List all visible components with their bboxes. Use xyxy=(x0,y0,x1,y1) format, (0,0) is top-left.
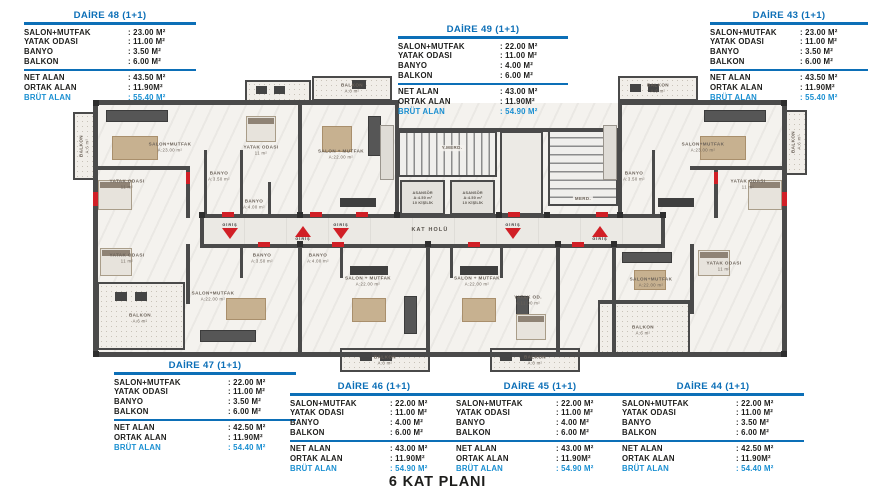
total-row-label: ORTAK ALAN xyxy=(24,83,128,93)
title-underline xyxy=(24,22,196,25)
wall xyxy=(93,166,189,170)
room-area: A:11.00 m² xyxy=(514,300,542,306)
apartment-info-table-daire-44: DAİRE 44 (1+1) SALON+MUTFAK: 22.00 M²YAT… xyxy=(622,381,804,474)
brut-row: BRÜT ALAN : 55.40 M² xyxy=(710,93,868,103)
spec-row-value: : 4.00 M² xyxy=(556,418,624,428)
brut-value: : 55.40 M² xyxy=(800,93,868,103)
column-marker xyxy=(297,212,303,218)
wall xyxy=(93,100,98,357)
spec-row: SALON+MUTFAK: 22.00 M² xyxy=(290,399,458,409)
total-row-value: : 11.90M² xyxy=(556,454,624,464)
door-marker xyxy=(356,212,368,217)
spec-row-value: : 22.00 M² xyxy=(390,399,458,409)
total-row-value: : 42.50 M² xyxy=(736,444,804,454)
column-marker xyxy=(617,212,623,218)
total-row-value: : 11.90M² xyxy=(800,83,868,93)
total-row: NET ALAN: 42.50 M² xyxy=(622,444,804,454)
spec-row-label: SALON+MUTFAK xyxy=(622,399,736,409)
furniture-sofa xyxy=(404,296,417,334)
room-name: BANYO xyxy=(253,252,272,257)
room-name: BALKON xyxy=(78,135,83,157)
room-name: SALON+MUTFAK xyxy=(149,141,192,146)
total-row: ORTAK ALAN: 11.90M² xyxy=(398,97,568,107)
total-row-label: NET ALAN xyxy=(114,423,228,433)
room-label: Y.MERD. xyxy=(440,145,465,151)
spec-row: YATAK ODASI: 11.00 M² xyxy=(398,51,568,61)
brut-label: BRÜT ALAN xyxy=(456,464,556,474)
room-label: SALON+MUTFAKA:22.00 m² xyxy=(630,276,673,287)
spec-row-value: : 11.00 M² xyxy=(800,37,868,47)
spec-row: YATAK ODASI: 11.00 M² xyxy=(456,408,624,418)
table-divider xyxy=(398,83,568,86)
spec-row-label: YATAK ODASI xyxy=(290,408,390,418)
room-name: BALKON xyxy=(341,82,363,87)
door-marker xyxy=(222,212,234,217)
room-name: YATAK ODASI xyxy=(110,178,145,183)
wall xyxy=(186,244,190,304)
room-area: A:6 m² xyxy=(341,88,363,94)
column-marker xyxy=(93,351,99,357)
total-row-label: ORTAK ALAN xyxy=(622,454,736,464)
room-name: SALON + MUTFAK xyxy=(454,275,500,280)
total-row-value: : 42.50 M² xyxy=(228,423,296,433)
table-divider xyxy=(24,69,196,72)
total-row: ORTAK ALAN: 11.90M² xyxy=(114,433,296,443)
column-marker xyxy=(496,212,502,218)
room-label: BALKONA:6 m² xyxy=(129,312,151,323)
room-area: A:22.00 m² xyxy=(192,296,235,302)
room-name: BALKON xyxy=(374,354,396,359)
furniture-sofa xyxy=(704,110,766,122)
room-area: 11 m² xyxy=(244,150,279,156)
furniture-sofa xyxy=(622,252,672,263)
room-area: A:3.50 m² xyxy=(623,176,645,182)
total-row-value: : 43.50 M² xyxy=(128,73,196,83)
wall xyxy=(204,150,207,214)
spec-row-label: BALKON xyxy=(290,428,390,438)
apartment-title: DAİRE 43 (1+1) xyxy=(710,10,868,21)
room-name: YATAK ODASI xyxy=(110,252,145,257)
spec-row: BANYO: 4.00 M² xyxy=(398,61,568,71)
spec-row-label: BANYO xyxy=(710,47,800,57)
total-row-label: NET ALAN xyxy=(456,444,556,454)
furniture-tbl xyxy=(350,266,388,275)
spec-row-value: : 6.00 M² xyxy=(128,57,196,67)
spec-row-value: : 23.00 M² xyxy=(128,28,196,38)
total-row-label: ORTAK ALAN xyxy=(290,454,390,464)
room-label: YATAK ODASI11 m² xyxy=(110,252,145,263)
furniture-tbl xyxy=(658,198,694,207)
spec-row-label: YATAK ODASI xyxy=(622,408,736,418)
total-row-label: ORTAK ALAN xyxy=(398,97,500,107)
spec-row-value: : 11.00 M² xyxy=(128,37,196,47)
furniture-chair xyxy=(256,86,267,94)
room-area: A:6 m² xyxy=(796,131,802,153)
spec-row-label: BANYO xyxy=(622,418,736,428)
wall xyxy=(200,214,204,248)
entrance-arrow-icon xyxy=(505,228,521,239)
room-area: A:6 m² xyxy=(129,318,151,324)
total-row-value: : 11.90M² xyxy=(390,454,458,464)
total-row: NET ALAN: 43.00 M² xyxy=(456,444,624,454)
room-name: YATAK ODASI xyxy=(244,144,279,149)
furniture-chair xyxy=(115,292,127,301)
room-label: BANYOA:4.00 m² xyxy=(307,252,329,263)
spec-row-label: BANYO xyxy=(398,61,500,71)
column-marker xyxy=(199,212,205,218)
column-marker xyxy=(781,351,787,357)
spec-row-value: : 6.00 M² xyxy=(390,428,458,438)
total-row: NET ALAN: 43.50 M² xyxy=(710,73,868,83)
table-divider xyxy=(290,440,458,443)
spec-row-label: YATAK ODASI xyxy=(456,408,556,418)
total-row: NET ALAN: 43.00 M² xyxy=(398,87,568,97)
elevator-1: ASANSÖR A:4.50 m² 10 KİŞİLİK xyxy=(400,180,445,215)
wall xyxy=(652,150,655,214)
room-label: BANYOA:3.50 m² xyxy=(251,252,273,263)
room-name: SALON+MUTFAK xyxy=(192,290,235,295)
room-label: BANYOA:3.50 m² xyxy=(623,170,645,181)
spec-row-label: YATAK ODASI xyxy=(24,37,128,47)
spec-row-label: BALKON xyxy=(398,71,500,81)
spec-row: BANYO: 3.50 M² xyxy=(710,47,868,57)
room-area: A:23.00 m² xyxy=(149,147,192,153)
spec-row-label: BANYO xyxy=(24,47,128,57)
entrance-marker: GİRİŞ xyxy=(295,226,311,242)
spec-row: BALKON: 6.00 M² xyxy=(456,428,624,438)
room-label: SALON + MUTFAKA:22.00 m² xyxy=(318,148,364,159)
title-underline xyxy=(398,36,568,39)
title-underline xyxy=(622,393,804,396)
furniture-sofa xyxy=(106,110,168,122)
room-label: BALKONA:6 m² xyxy=(632,324,654,335)
spec-row: YATAK ODASI: 11.00 M² xyxy=(24,37,196,47)
door-marker xyxy=(258,242,270,247)
brut-label: BRÜT ALAN xyxy=(290,464,390,474)
apartment-info-table-daire-48: DAİRE 48 (1+1) SALON+MUTFAK: 23.00 M²YAT… xyxy=(24,10,196,103)
door-marker xyxy=(186,172,190,184)
brut-label: BRÜT ALAN xyxy=(622,464,736,474)
total-row-label: NET ALAN xyxy=(398,87,500,97)
total-row: NET ALAN: 43.00 M² xyxy=(290,444,458,454)
apartment-number: DAİRE 45 xyxy=(504,381,550,392)
door-marker xyxy=(93,192,98,206)
spec-row-value: : 3.50 M² xyxy=(228,397,296,407)
spec-row-value: : 23.00 M² xyxy=(800,28,868,38)
elevator-2: ASANSÖR A:4.50 m² 10 KİŞİLİK xyxy=(450,180,495,215)
room-label: YATAK ODASI11 m² xyxy=(244,144,279,155)
table-divider xyxy=(710,69,868,72)
room-area: 11 m² xyxy=(110,258,145,264)
spec-row-value: : 3.50 M² xyxy=(736,418,804,428)
room-area: A:6 m² xyxy=(647,88,669,94)
spec-row-label: BALKON xyxy=(622,428,736,438)
brut-value: : 54.90 M² xyxy=(500,107,568,117)
entrance-arrow-icon xyxy=(592,226,608,237)
entrance-marker: GİRİŞ xyxy=(222,223,238,239)
apartment-number: DAİRE 46 xyxy=(338,381,384,392)
brut-value: : 54.90 M² xyxy=(390,464,458,474)
title-underline xyxy=(710,22,868,25)
spec-row: YATAK ODASI: 11.00 M² xyxy=(114,387,296,397)
furniture-chair xyxy=(500,352,512,361)
total-row-label: ORTAK ALAN xyxy=(456,454,556,464)
spec-row: BANYO: 4.00 M² xyxy=(290,418,458,428)
plan-caption: 6 KAT PLANI xyxy=(0,474,875,490)
brut-value: : 54.90 M² xyxy=(556,464,624,474)
spec-row: BALKON: 6.00 M² xyxy=(290,428,458,438)
spec-row-label: YATAK ODASI xyxy=(114,387,228,397)
room-name: BALKON xyxy=(647,82,669,87)
total-row: ORTAK ALAN: 11.90M² xyxy=(622,454,804,464)
furniture-tbl xyxy=(460,266,498,275)
spec-row: YATAK ODASI: 11.00 M² xyxy=(290,408,458,418)
door-marker xyxy=(508,212,520,217)
spec-row: SALON+MUTFAK: 22.00 M² xyxy=(114,378,296,388)
total-row: NET ALAN: 42.50 M² xyxy=(114,423,296,433)
room-area: A:22.00 m² xyxy=(454,281,500,287)
wall xyxy=(450,244,453,278)
spec-row: SALON+MUTFAK: 22.00 M² xyxy=(398,42,568,52)
furniture-bed xyxy=(516,314,546,340)
wall xyxy=(93,352,787,357)
apartment-title: DAİRE 47 (1+1) xyxy=(114,360,296,371)
room-name: MERD. xyxy=(575,196,591,201)
door-marker xyxy=(572,242,584,247)
wall xyxy=(298,105,302,218)
spec-row-value: : 6.00 M² xyxy=(500,71,568,81)
apartment-type: (1+1) xyxy=(217,360,241,371)
entrance-arrow-icon xyxy=(222,228,238,239)
total-row-value: : 43.00 M² xyxy=(556,444,624,454)
room-name: SALON + MUTFAK xyxy=(318,148,364,153)
brut-row: BRÜT ALAN : 54.90 M² xyxy=(290,464,458,474)
brut-label: BRÜT ALAN xyxy=(398,107,500,117)
room-label: SALON + MUTFAKA:22.00 m² xyxy=(454,275,500,286)
spec-row-value: : 11.00 M² xyxy=(500,51,568,61)
room-name: YATAK ODASI xyxy=(707,260,742,265)
furniture-rug xyxy=(462,298,496,322)
wall xyxy=(426,244,430,352)
spec-row-value: : 22.00 M² xyxy=(556,399,624,409)
room-area: 11 m² xyxy=(731,184,766,190)
wall xyxy=(690,166,787,170)
wall xyxy=(395,128,622,132)
room-name: SALON+MUTFAK xyxy=(682,141,725,146)
room-area: A:6 m² xyxy=(374,360,396,366)
room-name: BALKON xyxy=(632,324,654,329)
shaft-room xyxy=(500,131,543,215)
brut-row: BRÜT ALAN : 54.40 M² xyxy=(114,443,296,453)
spec-row-label: YATAK ODASI xyxy=(398,51,500,61)
brut-label: BRÜT ALAN xyxy=(24,93,128,103)
total-row-label: NET ALAN xyxy=(622,444,736,454)
column-marker xyxy=(611,241,617,247)
brut-row: BRÜT ALAN : 54.90 M² xyxy=(456,464,624,474)
furniture-tbl xyxy=(340,198,376,207)
column-marker xyxy=(660,212,666,218)
floor-plan-sheet: ASANSÖR A:4.50 m² 10 KİŞİLİK ASANSÖR A:4… xyxy=(0,0,875,490)
spec-row-value: : 11.00 M² xyxy=(556,408,624,418)
spec-row: YATAK ODASI: 11.00 M² xyxy=(622,408,804,418)
total-row-value: : 43.00 M² xyxy=(390,444,458,454)
room-area: A:4.00 m² xyxy=(243,204,265,210)
spec-row-value: : 22.00 M² xyxy=(736,399,804,409)
apartment-number: DAİRE 49 xyxy=(447,24,493,35)
room-area: A:3.50 m² xyxy=(251,258,273,264)
elevator-capacity: 10 KİŞİLİK xyxy=(462,200,483,205)
entrance-arrow-icon xyxy=(295,226,311,237)
table-divider xyxy=(622,440,804,443)
spec-row-label: BALKON xyxy=(710,57,800,67)
wall xyxy=(782,100,787,357)
wall xyxy=(618,128,622,218)
spec-row-value: : 6.00 M² xyxy=(800,57,868,67)
spec-row: BANYO: 3.50 M² xyxy=(24,47,196,57)
room-label: SALON+MUTFAKA:22.00 m² xyxy=(192,290,235,301)
apartment-title: DAİRE 44 (1+1) xyxy=(622,381,804,392)
room-area: A:6 m² xyxy=(632,330,654,336)
spec-row: SALON+MUTFAK: 22.00 M² xyxy=(622,399,804,409)
wall xyxy=(598,300,692,304)
spec-row-label: SALON+MUTFAK xyxy=(398,42,500,52)
spec-row-label: BANYO xyxy=(290,418,390,428)
apartment-type: (1+1) xyxy=(495,24,519,35)
wall xyxy=(661,214,665,248)
fire-stairs xyxy=(398,131,497,177)
elevator-capacity: 10 KİŞİLİK xyxy=(412,200,433,205)
room-label: BANYOA:4.00 m² xyxy=(243,198,265,209)
total-row-label: NET ALAN xyxy=(710,73,800,83)
room-name: BALKON xyxy=(129,312,151,317)
apartment-info-table-daire-46: DAİRE 46 (1+1) SALON+MUTFAK: 22.00 M²YAT… xyxy=(290,381,458,474)
entrance-arrow-icon xyxy=(333,228,349,239)
room-label: YATAK ODASI11 m² xyxy=(110,178,145,189)
room-area: A:6 m² xyxy=(524,360,546,366)
wall xyxy=(556,244,560,352)
wall xyxy=(500,244,503,278)
brut-value: : 54.40 M² xyxy=(228,443,296,453)
column-marker xyxy=(555,241,561,247)
spec-row: BALKON: 6.00 M² xyxy=(114,407,296,417)
spec-row: BALKON: 6.00 M² xyxy=(398,71,568,81)
room-label: YATAK OD.A:11.00 m² xyxy=(514,294,542,305)
room-name: BANYO xyxy=(210,170,229,175)
room-area: A:6 m² xyxy=(84,135,90,157)
table-divider xyxy=(114,419,296,422)
room-label: BALKONA:6 m² xyxy=(374,354,396,365)
room-label: MERD. xyxy=(573,196,593,202)
title-underline xyxy=(456,393,624,396)
room-name: BANYO xyxy=(245,198,264,203)
column-marker xyxy=(544,212,550,218)
spec-row-label: SALON+MUTFAK xyxy=(290,399,390,409)
room-name: Y.MERD. xyxy=(442,145,463,150)
spec-row-value: : 4.00 M² xyxy=(500,61,568,71)
total-row-value: : 43.00 M² xyxy=(500,87,568,97)
spec-row-label: BALKON xyxy=(114,407,228,417)
spec-row-value: : 3.50 M² xyxy=(800,47,868,57)
room-name: KAT HOLÜ xyxy=(411,227,448,233)
column-marker xyxy=(425,241,431,247)
apartment-type: (1+1) xyxy=(801,10,825,21)
room-area: A:22.00 m² xyxy=(318,154,364,160)
spec-row-label: SALON+MUTFAK xyxy=(456,399,556,409)
brut-row: BRÜT ALAN : 55.40 M² xyxy=(24,93,196,103)
brut-label: BRÜT ALAN xyxy=(710,93,800,103)
total-row: ORTAK ALAN: 11.90M² xyxy=(710,83,868,93)
apartment-number: DAİRE 47 xyxy=(169,360,215,371)
apartment-type: (1+1) xyxy=(122,10,146,21)
room-area: 11 m² xyxy=(110,184,145,190)
door-marker xyxy=(596,212,608,217)
total-row: NET ALAN: 43.50 M² xyxy=(24,73,196,83)
apartment-number: DAİRE 48 xyxy=(74,10,120,21)
brut-label: BRÜT ALAN xyxy=(114,443,228,453)
entrance-label: GİRİŞ xyxy=(592,237,607,242)
door-marker xyxy=(332,242,344,247)
table-divider xyxy=(456,440,624,443)
room-label: BALKONA:6 m² xyxy=(78,135,89,157)
room-label: BALKONA:6 m² xyxy=(790,131,801,153)
furniture-chair xyxy=(360,352,372,361)
room-area: A:23.00 m² xyxy=(682,147,725,153)
entrance-marker: GİRİŞ xyxy=(505,223,521,239)
apartment-number: DAİRE 43 xyxy=(753,10,799,21)
room-name: BANYO xyxy=(309,252,328,257)
spec-row-value: : 6.00 M² xyxy=(556,428,624,438)
spec-row-value: : 11.00 M² xyxy=(228,387,296,397)
spec-row-value: : 4.00 M² xyxy=(390,418,458,428)
spec-row-value: : 11.00 M² xyxy=(390,408,458,418)
wall xyxy=(298,244,302,352)
room-name: YATAK OD. xyxy=(514,294,542,299)
total-row-value: : 43.50 M² xyxy=(800,73,868,83)
room-name: BALKON xyxy=(790,131,795,153)
total-row: ORTAK ALAN: 11.90M² xyxy=(456,454,624,464)
room-name: BALKON xyxy=(524,354,546,359)
wall xyxy=(612,244,616,352)
furniture-chair xyxy=(274,86,285,94)
brut-row: BRÜT ALAN : 54.40 M² xyxy=(622,464,804,474)
room-area: A:4.00 m² xyxy=(307,258,329,264)
entrance-marker: GİRİŞ xyxy=(333,223,349,239)
apartment-title: DAİRE 48 (1+1) xyxy=(24,10,196,21)
spec-row-value: : 6.00 M² xyxy=(736,428,804,438)
furniture-chair xyxy=(135,292,147,301)
spec-row-label: SALON+MUTFAK xyxy=(710,28,800,38)
room-label: SALON + MUTFAKA:22.00 m² xyxy=(345,275,391,286)
spec-row: BANYO: 3.50 M² xyxy=(622,418,804,428)
furniture-bed xyxy=(246,116,276,142)
spec-row: BALKON: 6.00 M² xyxy=(24,57,196,67)
total-row-value: : 11.90M² xyxy=(128,83,196,93)
door-marker xyxy=(468,242,480,247)
room-label: BALKONA:6 m² xyxy=(647,82,669,93)
spec-row: BALKON: 6.00 M² xyxy=(710,57,868,67)
total-row-value: : 11.90M² xyxy=(228,433,296,443)
entrance-label: GİRİŞ xyxy=(295,237,310,242)
brut-value: : 54.40 M² xyxy=(736,464,804,474)
apartment-type: (1+1) xyxy=(552,381,576,392)
apartment-info-table-daire-43: DAİRE 43 (1+1) SALON+MUTFAK: 23.00 M²YAT… xyxy=(710,10,868,103)
wall xyxy=(240,244,243,278)
spec-row-label: BALKON xyxy=(456,428,556,438)
furniture-rug xyxy=(352,298,386,322)
wall xyxy=(340,244,343,278)
total-row-label: NET ALAN xyxy=(290,444,390,454)
brut-row: BRÜT ALAN : 54.90 M² xyxy=(398,107,568,117)
